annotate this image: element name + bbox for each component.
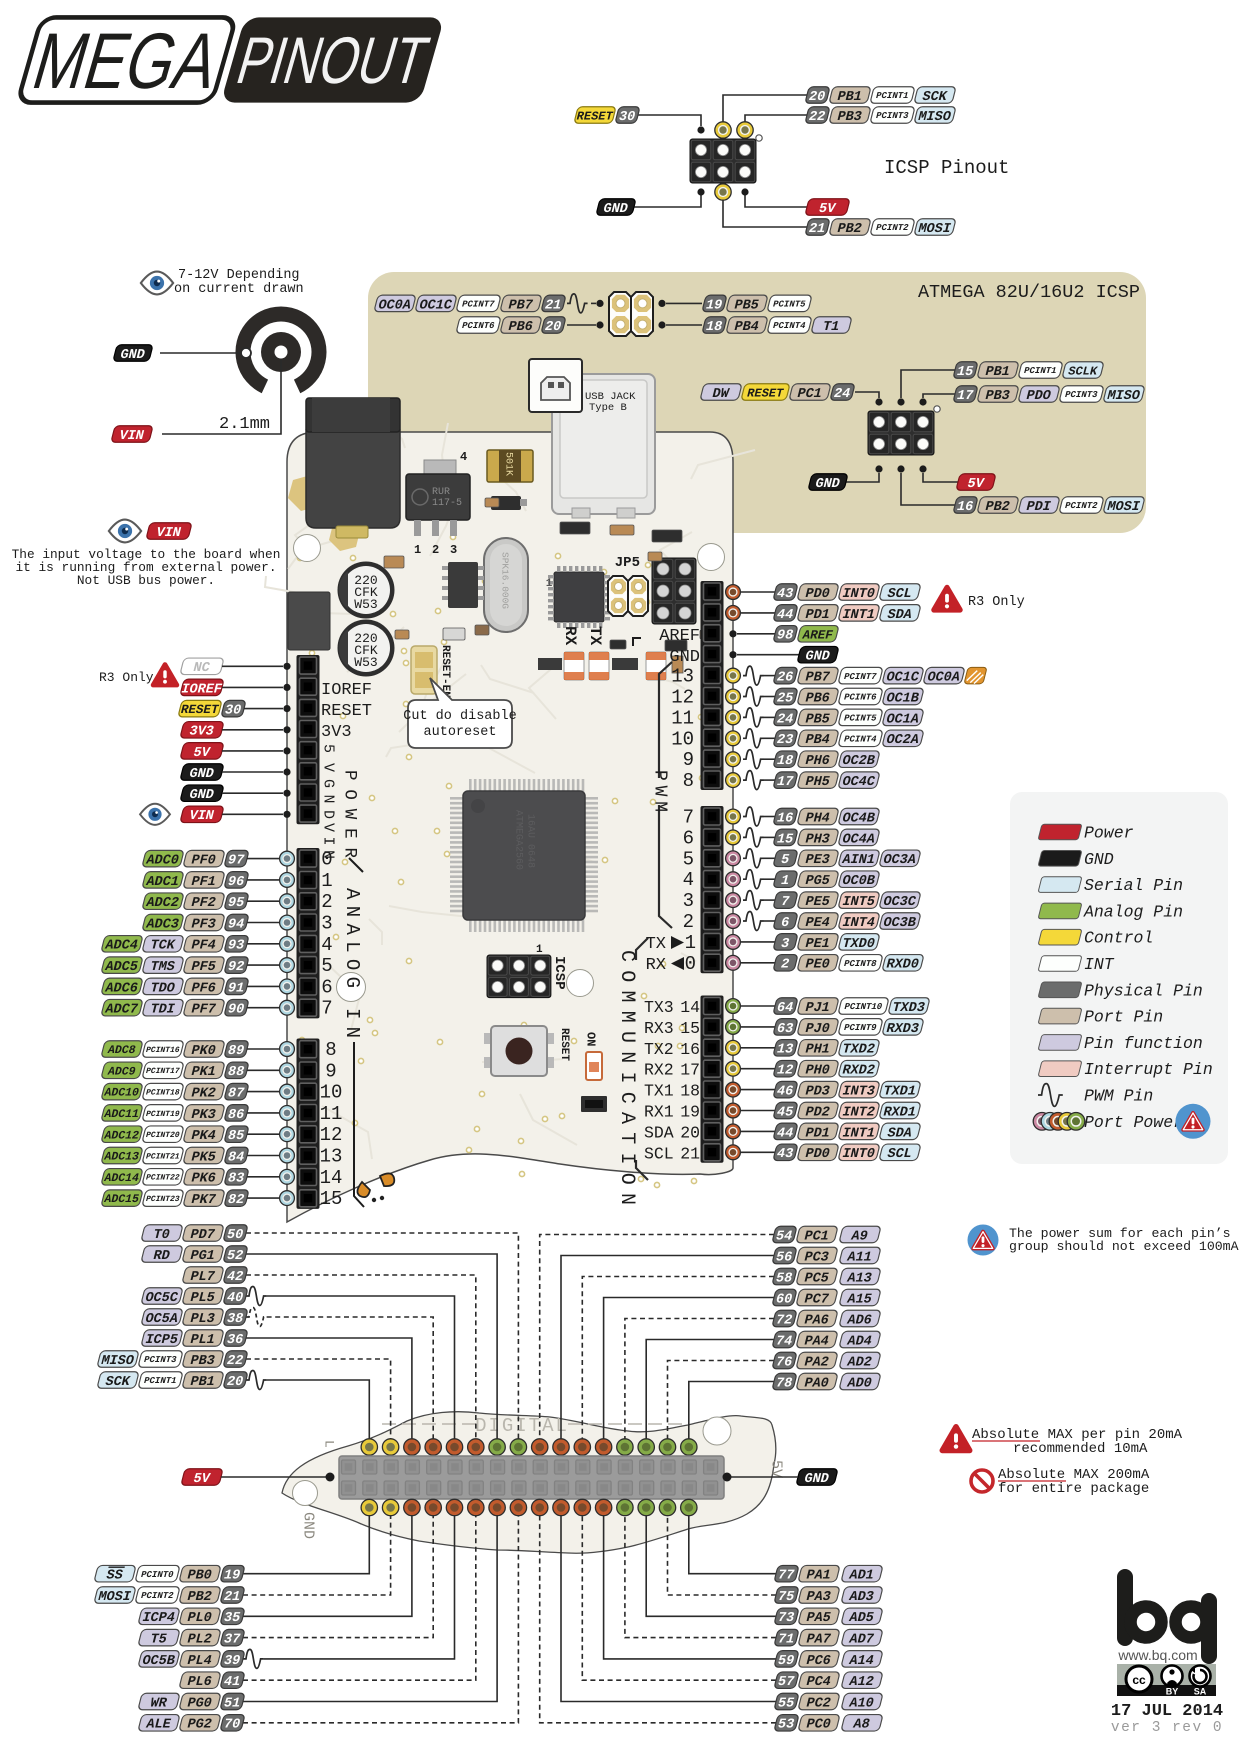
svg-text:PH6: PH6 <box>803 754 831 769</box>
svg-text:PG2: PG2 <box>185 1718 213 1733</box>
svg-text:PD3: PD3 <box>803 1085 831 1100</box>
svg-text:PA5: PA5 <box>804 1611 832 1626</box>
svg-text:RESET: RESET <box>558 1028 570 1061</box>
svg-text:PK3: PK3 <box>189 1108 217 1123</box>
svg-text:PA3: PA3 <box>804 1590 832 1605</box>
svg-text:L: L <box>321 1440 336 1448</box>
svg-text:PG5: PG5 <box>803 874 831 889</box>
svg-text:recommended 10mA: recommended 10mA <box>1013 1441 1148 1457</box>
svg-text:PB5: PB5 <box>732 298 760 313</box>
svg-text:cc: cc <box>1132 1673 1146 1687</box>
svg-text:4: 4 <box>321 934 332 956</box>
svg-text:PCINT1: PCINT1 <box>143 1375 179 1386</box>
svg-text:5: 5 <box>683 848 694 870</box>
svg-text:PH5: PH5 <box>803 775 831 790</box>
svg-text:11: 11 <box>671 707 694 729</box>
svg-text:OC5A: OC5A <box>143 1312 180 1327</box>
svg-text:9: 9 <box>325 1060 336 1082</box>
svg-text:A13: A13 <box>845 1272 873 1287</box>
svg-text:3V3: 3V3 <box>321 723 352 742</box>
svg-text:1: 1 <box>536 944 543 956</box>
svg-text:Not USB bus power.: Not USB bus power. <box>77 573 215 588</box>
svg-text:OC1B: OC1B <box>884 692 920 707</box>
svg-text:PA2: PA2 <box>802 1356 830 1371</box>
svg-text:R3 Only: R3 Only <box>99 670 154 685</box>
svg-text:PCINT7: PCINT7 <box>461 299 496 310</box>
svg-text:TX2: TX2 <box>644 1040 674 1059</box>
svg-text:PWM: PWM <box>650 770 670 812</box>
svg-text:8: 8 <box>683 770 694 792</box>
svg-text:AD0: AD0 <box>845 1377 873 1392</box>
svg-text:ADC5: ADC5 <box>103 960 139 975</box>
svg-text:R3 Only: R3 Only <box>968 595 1025 610</box>
svg-text:ON: ON <box>584 1032 598 1046</box>
svg-text:PCINT1: PCINT1 <box>1023 365 1059 376</box>
svg-text:5V: 5V <box>768 1460 785 1478</box>
svg-text:PB3: PB3 <box>983 389 1011 404</box>
svg-text:PC4: PC4 <box>804 1675 832 1690</box>
svg-text:A15: A15 <box>845 1293 873 1308</box>
svg-text:PCINT2: PCINT2 <box>1064 500 1099 511</box>
svg-text:MISO: MISO <box>1105 389 1141 404</box>
svg-text:PK4: PK4 <box>189 1129 217 1144</box>
svg-text:501K: 501K <box>502 452 513 476</box>
svg-text:PCINT20: PCINT20 <box>145 1131 181 1140</box>
svg-text:14: 14 <box>680 998 700 1017</box>
svg-text:Control: Control <box>1084 929 1153 948</box>
svg-text:group should not exceed 100mA: group should not exceed 100mA <box>1009 1239 1239 1254</box>
svg-text:ADC15: ADC15 <box>103 1192 141 1206</box>
svg-text:AD7: AD7 <box>847 1633 875 1648</box>
svg-text:12: 12 <box>320 1124 343 1146</box>
svg-text:7-12V Depending: 7-12V Depending <box>178 268 300 283</box>
svg-text:PL5: PL5 <box>188 1291 216 1306</box>
svg-text:2: 2 <box>683 911 694 933</box>
svg-text:PG1: PG1 <box>188 1249 216 1264</box>
svg-text:PD2: PD2 <box>803 1106 831 1121</box>
svg-text:PC0: PC0 <box>804 1718 832 1733</box>
svg-text:17 JUL 2014: 17 JUL 2014 <box>1111 1702 1223 1721</box>
svg-text:RXD3: RXD3 <box>884 1022 920 1037</box>
svg-text:PWM Pin: PWM Pin <box>1084 1087 1153 1106</box>
svg-text:TXD3: TXD3 <box>890 1001 926 1016</box>
svg-text:16: 16 <box>680 1040 700 1059</box>
svg-text:OC4C: OC4C <box>840 775 876 790</box>
svg-text:W53: W53 <box>354 597 377 612</box>
svg-text:PF2: PF2 <box>189 896 217 911</box>
svg-text:PCINT9: PCINT9 <box>843 1022 878 1033</box>
svg-text:7: 7 <box>683 807 694 829</box>
svg-text:PL2: PL2 <box>185 1633 213 1648</box>
svg-text:GND: GND <box>187 788 215 803</box>
svg-text:Serial Pin: Serial Pin <box>1084 876 1183 895</box>
svg-text:PB7: PB7 <box>506 298 534 313</box>
svg-text:PJ0: PJ0 <box>803 1022 831 1037</box>
svg-text:PE1: PE1 <box>803 937 831 952</box>
svg-text:13: 13 <box>320 1146 343 1168</box>
svg-text:Physical Pin: Physical Pin <box>1084 981 1203 1000</box>
svg-text:PF7: PF7 <box>189 1003 217 1018</box>
svg-text:PH1: PH1 <box>803 1043 831 1058</box>
svg-text:3: 3 <box>321 913 332 935</box>
svg-text:0: 0 <box>685 953 696 975</box>
svg-text:ADC4: ADC4 <box>103 939 139 954</box>
svg-text:ADC7: ADC7 <box>103 1003 139 1018</box>
svg-text:INT1: INT1 <box>840 608 876 623</box>
svg-text:PB7: PB7 <box>803 671 831 686</box>
svg-text:PK2: PK2 <box>189 1087 217 1102</box>
svg-text:www.bq.com: www.bq.com <box>1117 1647 1197 1663</box>
svg-text:PB3: PB3 <box>188 1354 216 1369</box>
svg-text:PB6: PB6 <box>803 692 831 707</box>
svg-text:RX: RX <box>646 956 666 975</box>
svg-text:MISO: MISO <box>916 110 952 125</box>
svg-text:SDA: SDA <box>644 1123 674 1142</box>
svg-text:AD5: AD5 <box>847 1611 875 1626</box>
svg-text:PCINT5: PCINT5 <box>843 713 878 724</box>
svg-text:RX: RX <box>561 626 579 646</box>
svg-text:PF5: PF5 <box>189 960 217 975</box>
svg-text:SCL: SCL <box>885 1147 913 1162</box>
svg-text:RESET: RESET <box>745 386 784 400</box>
svg-text:PE4: PE4 <box>803 916 831 931</box>
svg-text:PCINT5: PCINT5 <box>772 299 807 310</box>
svg-text:RESET: RESET <box>179 702 221 717</box>
svg-text:0: 0 <box>321 849 332 871</box>
svg-text:1: 1 <box>321 870 332 892</box>
svg-text:AIN1: AIN1 <box>840 853 876 868</box>
svg-text:SPK16.000G: SPK16.000G <box>500 552 511 609</box>
svg-text:PINOUT: PINOUT <box>229 24 436 98</box>
svg-text:PC1: PC1 <box>795 387 823 402</box>
svg-text:PB1: PB1 <box>983 365 1011 380</box>
svg-text:TDO: TDO <box>148 981 176 996</box>
svg-text:RUR: RUR <box>432 487 450 498</box>
svg-text:PCINT7: PCINT7 <box>843 671 878 682</box>
svg-text:GND: GND <box>669 648 700 667</box>
svg-text:GND: GND <box>118 348 146 363</box>
svg-text:OC3B: OC3B <box>881 916 917 931</box>
svg-text:W53: W53 <box>354 655 377 670</box>
svg-text:14: 14 <box>320 1167 343 1189</box>
svg-text:RX1: RX1 <box>644 1103 674 1122</box>
svg-text:SCK: SCK <box>103 1375 132 1390</box>
svg-text:Pin function: Pin function <box>1084 1034 1203 1053</box>
svg-text:10: 10 <box>671 728 694 750</box>
svg-text:INT0: INT0 <box>840 587 876 602</box>
svg-text:PCINT19: PCINT19 <box>145 1110 181 1119</box>
svg-text:TX: TX <box>586 626 604 646</box>
svg-text:SCL: SCL <box>885 587 913 602</box>
svg-text:PB2: PB2 <box>835 222 863 237</box>
svg-text:PCINT6: PCINT6 <box>843 692 878 703</box>
svg-text:PB1: PB1 <box>835 90 863 105</box>
svg-text:SDA: SDA <box>885 608 914 623</box>
svg-text:SCLK: SCLK <box>1067 364 1100 378</box>
svg-text:OC4A: OC4A <box>840 832 877 847</box>
svg-text:PC3: PC3 <box>802 1251 830 1266</box>
svg-text:ADC11: ADC11 <box>103 1107 141 1121</box>
svg-text:TCK: TCK <box>148 939 177 954</box>
svg-text:PF3: PF3 <box>189 918 217 933</box>
svg-text:2: 2 <box>321 891 332 913</box>
svg-text:Port Pin: Port Pin <box>1084 1008 1163 1027</box>
svg-text:GND: GND <box>300 1512 317 1539</box>
svg-text:PK6: PK6 <box>189 1172 217 1187</box>
svg-text:PE0: PE0 <box>803 958 831 973</box>
svg-text:PL0: PL0 <box>185 1611 213 1626</box>
svg-text:ALE: ALE <box>144 1718 172 1733</box>
svg-text:PF0: PF0 <box>189 854 217 869</box>
svg-text:ICSP Pinout: ICSP Pinout <box>884 157 1009 179</box>
svg-text:OC1A: OC1A <box>884 712 921 727</box>
svg-text:PL7: PL7 <box>188 1270 216 1285</box>
svg-text:ADC12: ADC12 <box>103 1128 141 1142</box>
svg-text:OC4B: OC4B <box>840 812 876 827</box>
svg-text:PD1: PD1 <box>803 1126 831 1141</box>
svg-text:21: 21 <box>680 1144 700 1163</box>
svg-text:PH4: PH4 <box>803 812 831 827</box>
svg-text:GND: GND <box>802 1472 830 1487</box>
svg-text:2: 2 <box>432 543 439 557</box>
svg-text:OC2A: OC2A <box>884 733 921 748</box>
svg-text:Analog Pin: Analog Pin <box>1083 902 1183 921</box>
svg-text:ADC1: ADC1 <box>144 875 180 890</box>
svg-text:PC7: PC7 <box>802 1293 830 1308</box>
svg-text:IOREF: IOREF <box>321 681 372 700</box>
svg-text:PCINT22: PCINT22 <box>145 1174 181 1183</box>
svg-text:PA4: PA4 <box>802 1335 830 1350</box>
svg-text:A10: A10 <box>847 1697 875 1712</box>
svg-text:TXD1: TXD1 <box>881 1085 917 1100</box>
svg-text:BY: BY <box>1166 1687 1179 1697</box>
svg-text:PB0: PB0 <box>185 1569 213 1584</box>
svg-text:OC1C: OC1C <box>417 298 453 313</box>
svg-text:OC5C: OC5C <box>143 1291 179 1306</box>
svg-text:TMS: TMS <box>148 960 176 975</box>
svg-text:ICP5: ICP5 <box>143 1333 179 1348</box>
svg-text:5: 5 <box>321 955 332 977</box>
svg-text:INT3: INT3 <box>840 1085 876 1100</box>
svg-text:ADC10: ADC10 <box>103 1086 141 1100</box>
svg-text:GND: GND <box>803 650 831 665</box>
svg-text:PC6: PC6 <box>804 1654 832 1669</box>
svg-text:PJ1: PJ1 <box>803 1001 831 1016</box>
svg-text:PL4: PL4 <box>185 1654 213 1669</box>
svg-text:RXD2: RXD2 <box>840 1064 876 1079</box>
svg-text:PL6: PL6 <box>185 1675 213 1690</box>
svg-text:GND: GND <box>601 202 629 217</box>
svg-text:9: 9 <box>683 749 694 771</box>
svg-text:AD3: AD3 <box>847 1590 875 1605</box>
svg-text:7: 7 <box>321 998 332 1020</box>
svg-text:PF1: PF1 <box>189 875 217 890</box>
svg-text:OC5B: OC5B <box>140 1654 176 1669</box>
svg-text:GND: GND <box>813 477 841 492</box>
svg-text:PCINT3: PCINT3 <box>875 110 911 121</box>
svg-text:PCINT3: PCINT3 <box>143 1354 179 1365</box>
svg-text:3: 3 <box>683 890 694 912</box>
svg-text:PB4: PB4 <box>732 320 760 335</box>
svg-text:PCINT4: PCINT4 <box>772 320 808 331</box>
svg-text:MOSI: MOSI <box>96 1590 132 1605</box>
svg-text:INT4: INT4 <box>840 916 876 931</box>
svg-text:OC0A: OC0A <box>925 671 962 686</box>
svg-text:PB1: PB1 <box>188 1375 216 1390</box>
svg-text:IOREF: IOREF <box>179 682 223 697</box>
svg-text:MOSI: MOSI <box>1105 500 1141 515</box>
svg-text:1: 1 <box>414 543 421 557</box>
svg-text:PB6: PB6 <box>506 320 534 335</box>
svg-text:10: 10 <box>320 1082 343 1104</box>
svg-text:TX1: TX1 <box>644 1082 674 1101</box>
svg-text:TDI: TDI <box>148 1003 176 1018</box>
svg-text:PDI: PDI <box>1024 500 1052 515</box>
svg-text:PB5: PB5 <box>803 712 831 727</box>
svg-text:PB2: PB2 <box>983 500 1011 515</box>
svg-text:6: 6 <box>321 976 332 998</box>
svg-text:PCINT3: PCINT3 <box>1064 389 1100 400</box>
svg-text:GND: GND <box>1084 850 1114 869</box>
svg-text:MISO: MISO <box>99 1354 135 1369</box>
svg-text:3V3: 3V3 <box>187 725 215 740</box>
svg-text:TX: TX <box>646 935 666 954</box>
svg-text:OC0B: OC0B <box>840 874 876 889</box>
svg-text:20: 20 <box>680 1123 700 1142</box>
svg-text:PCINT2: PCINT2 <box>875 222 910 233</box>
svg-text:ADC6: ADC6 <box>103 981 139 996</box>
svg-text:ver 3 rev 0: ver 3 rev 0 <box>1111 1720 1223 1736</box>
svg-text:PCINT10: PCINT10 <box>843 1001 883 1012</box>
svg-text:on current drawn: on current drawn <box>174 282 304 297</box>
svg-text:ADC8: ADC8 <box>106 1043 137 1057</box>
svg-text:VIN: VIN <box>187 809 215 824</box>
svg-text:AD2: AD2 <box>845 1356 873 1371</box>
svg-text:PCINT8: PCINT8 <box>843 958 878 969</box>
svg-text:13: 13 <box>671 666 694 688</box>
svg-text:PK7: PK7 <box>189 1193 217 1208</box>
svg-text:PB2: PB2 <box>185 1590 213 1605</box>
svg-text:1: 1 <box>546 578 553 590</box>
svg-text:6: 6 <box>683 827 694 849</box>
svg-text:INT: INT <box>1084 955 1115 974</box>
svg-text:A11: A11 <box>845 1251 873 1266</box>
svg-text:PL3: PL3 <box>188 1312 216 1327</box>
svg-text:VIN: VIN <box>117 429 145 444</box>
svg-text:PK5: PK5 <box>189 1151 217 1166</box>
svg-text:INT2: INT2 <box>840 1106 876 1121</box>
svg-text:SA: SA <box>1194 1687 1207 1697</box>
svg-text:PD0: PD0 <box>803 1147 831 1162</box>
svg-text:Type B: Type B <box>589 402 627 414</box>
svg-text:VIN: VIN <box>154 526 182 541</box>
svg-text:INT0: INT0 <box>840 1147 876 1162</box>
svg-text:A14: A14 <box>847 1654 875 1669</box>
svg-text:3: 3 <box>450 543 457 557</box>
svg-text:Port Power: Port Power <box>1084 1113 1183 1132</box>
svg-text:SCK: SCK <box>920 90 949 105</box>
svg-text:SDA: SDA <box>885 1126 914 1141</box>
svg-text:PCINT4: PCINT4 <box>843 734 879 745</box>
svg-text:Cut do disable: Cut do disable <box>403 709 516 724</box>
svg-text:PK0: PK0 <box>189 1044 217 1059</box>
svg-text:DIGITAL: DIGITAL <box>475 1415 569 1437</box>
svg-text:PCINT2: PCINT2 <box>140 1590 175 1601</box>
svg-text:RESET: RESET <box>321 702 372 721</box>
svg-text:ADC3: ADC3 <box>144 918 180 933</box>
svg-text:PCINT1: PCINT1 <box>875 90 911 101</box>
svg-text:117-5: 117-5 <box>432 498 462 509</box>
svg-text:PH3: PH3 <box>803 832 831 847</box>
svg-text:TXD2: TXD2 <box>840 1043 876 1058</box>
svg-text:MOSI: MOSI <box>916 222 952 237</box>
svg-text:PD1: PD1 <box>803 608 831 623</box>
svg-text:ADC0: ADC0 <box>144 854 180 869</box>
svg-text:ADC13: ADC13 <box>103 1150 141 1164</box>
svg-text:15: 15 <box>320 1188 343 1210</box>
svg-text:for entire package: for entire package <box>998 1481 1149 1497</box>
svg-text:PD0: PD0 <box>803 587 831 602</box>
svg-text:GND: GND <box>320 779 337 819</box>
svg-text:PDO: PDO <box>1024 389 1052 404</box>
svg-text:12: 12 <box>671 687 694 709</box>
svg-text:PH0: PH0 <box>803 1064 831 1079</box>
svg-text:PCINT18: PCINT18 <box>145 1089 181 1098</box>
svg-text:INT1: INT1 <box>840 1126 876 1141</box>
svg-text:PK1: PK1 <box>189 1065 217 1080</box>
svg-text:ATMEGA2560: ATMEGA2560 <box>512 810 523 870</box>
svg-text:INT5: INT5 <box>840 895 876 910</box>
svg-text:OC0A: OC0A <box>376 298 413 313</box>
svg-text:OC2B: OC2B <box>840 754 876 769</box>
svg-text:PA6: PA6 <box>802 1314 830 1329</box>
svg-text:PCINT17: PCINT17 <box>145 1067 181 1076</box>
svg-text:GND: GND <box>187 767 215 782</box>
svg-text:PF6: PF6 <box>189 981 217 996</box>
svg-text:PC1: PC1 <box>802 1230 830 1245</box>
svg-text:2.1mm: 2.1mm <box>219 415 270 434</box>
svg-text:ICSP: ICSP <box>551 956 567 990</box>
svg-text:ADC9: ADC9 <box>106 1065 137 1079</box>
svg-text:15: 15 <box>680 1019 700 1038</box>
svg-text:PF4: PF4 <box>189 939 217 954</box>
svg-text:PCINT16: PCINT16 <box>145 1046 181 1055</box>
svg-text:TX3: TX3 <box>644 998 674 1017</box>
svg-text:RX3: RX3 <box>644 1019 674 1038</box>
svg-text:4: 4 <box>460 450 467 464</box>
svg-text:16AU 0648: 16AU 0648 <box>524 814 535 868</box>
svg-text:AD4: AD4 <box>845 1335 873 1350</box>
svg-text:OC3A: OC3A <box>881 853 918 868</box>
svg-text:TXD0: TXD0 <box>840 937 876 952</box>
svg-text:PB4: PB4 <box>803 733 831 748</box>
svg-text:AREF: AREF <box>659 627 700 646</box>
svg-text:PC5: PC5 <box>802 1272 830 1287</box>
svg-text:PD7: PD7 <box>188 1228 216 1243</box>
svg-text:PG0: PG0 <box>185 1697 213 1712</box>
svg-text:PCINT23: PCINT23 <box>145 1195 181 1204</box>
svg-text:PB3: PB3 <box>835 110 863 125</box>
svg-text:RXD1: RXD1 <box>881 1106 917 1121</box>
svg-text:AD6: AD6 <box>845 1314 873 1329</box>
svg-text:19: 19 <box>680 1103 700 1122</box>
svg-text:AREF: AREF <box>801 627 835 642</box>
svg-text:MEGA: MEGA <box>24 17 229 105</box>
svg-text:A12: A12 <box>847 1675 875 1690</box>
svg-text:PL1: PL1 <box>188 1333 216 1348</box>
svg-text:OC1C: OC1C <box>884 671 920 686</box>
svg-text:PA7: PA7 <box>804 1633 832 1648</box>
